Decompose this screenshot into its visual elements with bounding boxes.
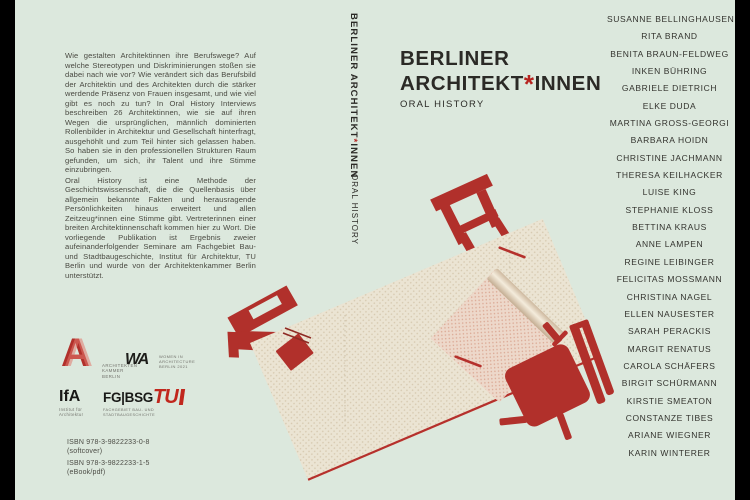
contributor-name: ELLEN NAUSESTER	[607, 306, 732, 323]
spine-subtitle: ORAL HISTORY	[350, 174, 359, 245]
contributor-name: THERESA KEILHACKER	[607, 167, 732, 184]
blurb-paragraph-1: Wie gestalten Architektinnen ihre Berufs…	[65, 51, 256, 175]
contributor-name: INKEN BÜHRING	[607, 63, 732, 80]
wia-mark-icon: WA	[125, 351, 148, 369]
isbn-softcover-label: (softcover)	[67, 447, 150, 456]
title-asterisk: *	[524, 69, 535, 99]
contributor-name: RITA BRAND	[607, 28, 732, 45]
chair-left-illustration	[222, 278, 316, 368]
title-line-2: ARCHITEKT*INNEN	[400, 71, 601, 96]
contributor-name: STEPHANIE KLOSS	[607, 202, 732, 219]
ifa-caption: Institut für Architektur	[59, 407, 105, 418]
contributor-name: SARAH PERACKIS	[607, 323, 732, 340]
pencil-icon	[454, 355, 482, 368]
contributor-name: LUISE KING	[607, 184, 732, 201]
contributor-name: KIRSTIE SMEATON	[607, 393, 732, 410]
spine-title: BERLINER ARCHITEKT*INNEN	[348, 13, 359, 178]
wia-caption: WOMEN IN ARCHITECTURE BERLIN 2021	[159, 354, 195, 369]
architektenkammer-berlin-logo: AA ARCHITEKTEN KAMMER BERLIN	[61, 338, 131, 380]
front-cover-title-block: BERLINER ARCHITEKT*INNEN ORAL HISTORY	[400, 46, 601, 110]
book-cover-spread: Wie gestalten Architektinnen ihre Berufs…	[15, 0, 735, 500]
contributor-name: REGINE LEIBINGER	[607, 254, 732, 271]
fg-bsg-mark-icon: FG|BSG	[103, 391, 155, 405]
contributor-name: CHRISTINA NAGEL	[607, 289, 732, 306]
contributor-name: SUSANNE BELLINGHAUSEN	[607, 11, 732, 28]
contributor-name: CONSTANZE TIBES	[607, 410, 732, 427]
title-line-1: BERLINER	[400, 46, 601, 71]
book-subtitle: ORAL HISTORY	[400, 99, 601, 110]
paper-roll-illustration	[485, 266, 568, 347]
contributor-name: BIRGIT SCHÜRMANN	[607, 375, 732, 392]
isbn-ebook-label: (eBook/pdf)	[67, 468, 150, 477]
isbn-ebook: ISBN 978-3-9822233-1-5	[67, 459, 150, 468]
contributor-name: BETTINA KRAUS	[607, 219, 732, 236]
screenshot-root: { "colors": { "background": "#dce8dd", "…	[0, 0, 750, 500]
contributor-name: KARIN WINTERER	[607, 445, 732, 462]
contributor-name: BENITA BRAUN-FELDWEG	[607, 46, 732, 63]
blurb-paragraph-2: Oral History ist eine Methode der Geschi…	[65, 176, 256, 281]
fg-bsg-caption: FACHGEBIET BAU- UND STADTBAUGESCHICHTE	[103, 408, 155, 419]
contributor-name: FELICITAS MOSSMANN	[607, 271, 732, 288]
contributor-name: GABRIELE DIETRICH	[607, 80, 732, 97]
paper-sheet-illustration	[431, 270, 564, 403]
contributor-name: BARBARA HOIDN	[607, 132, 732, 149]
pencil-icon	[498, 246, 526, 259]
contributor-name: CAROLA SCHÄFERS	[607, 358, 732, 375]
contributor-name: CHRISTINE JACHMANN	[607, 150, 732, 167]
ifa-mark-icon: IfA	[59, 388, 105, 405]
chair-top-illustration	[428, 173, 515, 268]
isbn-softcover: ISBN 978-3-9822233-0-8	[67, 438, 150, 447]
fg-bsg-logo: FG|BSG FACHGEBIET BAU- UND STADTBAUGESCH…	[103, 391, 155, 423]
drafting-table-illustration	[250, 219, 601, 481]
back-cover-blurb: Wie gestalten Architektinnen ihre Berufs…	[65, 51, 256, 281]
notebook-illustration	[276, 328, 314, 371]
architektenkammer-a-icon: AA	[61, 332, 90, 374]
contributors-list: SUSANNE BELLINGHAUSENRITA BRANDBENITA BR…	[607, 11, 732, 462]
contributor-name: ANNE LAMPEN	[607, 236, 732, 253]
women-in-architecture-logo: WA WOMEN IN ARCHITECTURE BERLIN 2021	[125, 351, 200, 379]
ifa-logo: IfA Institut für Architektur	[59, 388, 105, 422]
tu-berlin-mark-icon: TU	[153, 385, 193, 409]
isbn-block: ISBN 978-3-9822233-0-8 (softcover) ISBN …	[67, 438, 150, 477]
contributor-name: MARGIT RENATUS	[607, 341, 732, 358]
tu-berlin-logo: TU	[153, 385, 193, 419]
contributor-name: MARTINA GROSS-GEORGI	[607, 115, 732, 132]
contributor-name: ELKE DUDA	[607, 98, 732, 115]
contributor-name: ARIANE WIEGNER	[607, 427, 732, 444]
